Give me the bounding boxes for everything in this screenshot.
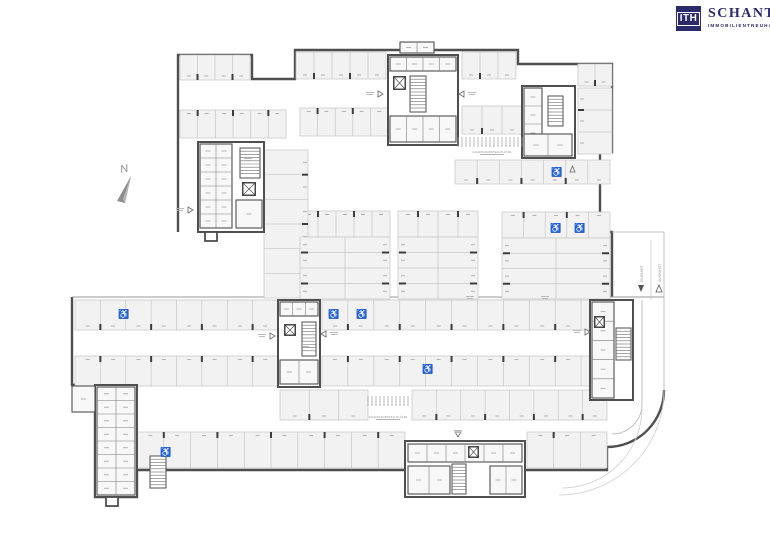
storage-cells	[524, 134, 572, 156]
storage-cells	[390, 57, 456, 71]
elevator-icon	[594, 316, 605, 328]
brand-logo: ITH SCHANTL IMMOBILIENTREUHAND	[676, 6, 770, 31]
ramp-arrow-in-icon	[638, 285, 644, 292]
parking-row	[280, 390, 368, 420]
tiny-label-smudge	[454, 430, 462, 433]
stairs-icon	[452, 464, 466, 494]
storage-cells	[280, 302, 318, 316]
stairs-icon	[548, 96, 563, 126]
storage-cells	[200, 144, 232, 228]
tiny-label-smudge	[468, 92, 476, 95]
storage-cells	[408, 444, 522, 462]
accessible-icon: ♿	[356, 308, 367, 319]
parking-row	[398, 211, 478, 237]
accessible-icon: ♿	[550, 222, 561, 233]
north-label: N	[119, 163, 129, 176]
parking-row	[75, 356, 278, 386]
storage-cells	[236, 200, 262, 228]
ramp-in-label: EINFAHRT	[640, 265, 644, 282]
stairs-icon	[240, 148, 260, 178]
elevator-icon	[242, 182, 256, 196]
north-arrow-icon: N	[117, 163, 131, 203]
parking-row	[75, 300, 278, 330]
parking-row	[322, 356, 607, 386]
brand-name: SCHANTL	[708, 6, 770, 21]
accessible-icon: ♿	[574, 222, 585, 233]
stairs-icon	[410, 76, 426, 112]
bike-parking-label: FAHRRADABSTELLPLÄTZE	[369, 415, 408, 419]
accessible-icon: ♿	[160, 446, 171, 457]
bike-racks-icon: FAHRRADABSTELLPLÄTZE	[367, 396, 408, 420]
bike-parking-label: FAHRRADABSTELLPLÄTZE	[473, 150, 512, 154]
entry-arrow-icon	[270, 333, 275, 339]
parking-row	[180, 55, 250, 80]
accessible-icon: ♿	[118, 308, 129, 319]
parking-island	[502, 238, 610, 299]
floor-plan: ITH SCHANTL IMMOBILIENTREUHAND ♿♿♿♿♿♿♿♿F…	[0, 0, 770, 545]
elevator-icon	[393, 76, 406, 90]
parking-row	[300, 108, 388, 136]
elevator-icon	[468, 446, 479, 458]
elevator-icon	[284, 324, 296, 336]
stairs-icon	[150, 456, 166, 488]
parking-strip	[578, 88, 612, 154]
bike-racks-icon: FAHRRADABSTELLPLÄTZE	[457, 137, 522, 155]
storage-cells	[97, 387, 135, 495]
storage-cells	[280, 360, 318, 384]
parking-row	[412, 390, 607, 420]
garage-plan-drawing: ♿♿♿♿♿♿♿♿FAHRRADABSTELLPLÄTZEFAHRRADABSTE…	[0, 0, 770, 545]
parking-row	[578, 64, 612, 86]
entry-arrow-icon	[321, 331, 326, 337]
entry-arrow-icon	[188, 207, 193, 213]
tiny-label-smudge	[330, 332, 338, 335]
storage-cells	[390, 116, 456, 142]
ith-logo-icon: ITH	[676, 6, 701, 31]
parking-row	[296, 52, 386, 79]
parking-island	[398, 237, 478, 299]
ramp-lanes: EINFAHRTAUSFAHRT	[638, 264, 662, 292]
parking-row	[137, 432, 405, 468]
parking-row	[300, 211, 390, 237]
tiny-label-smudge	[573, 330, 581, 333]
storage-cells	[408, 466, 450, 494]
logo-monogram: ITH	[677, 12, 701, 26]
brand-tagline: IMMOBILIENTREUHAND	[708, 23, 770, 28]
tiny-label-smudge	[258, 334, 266, 337]
entry-arrow-icon	[459, 91, 464, 97]
entry-arrow-icon	[378, 91, 383, 97]
parking-row	[180, 110, 286, 138]
parking-row	[455, 160, 610, 184]
accessible-icon: ♿	[551, 166, 562, 177]
tiny-label-smudge	[366, 92, 374, 95]
accessible-icon: ♿	[328, 308, 339, 319]
storage-cells	[490, 466, 522, 494]
accessible-icon: ♿	[422, 363, 433, 374]
ramp-arrow-out-icon	[656, 285, 662, 292]
stairs-icon	[302, 322, 316, 356]
storage-cells	[72, 386, 95, 412]
parking-row	[462, 52, 516, 79]
stairs-icon	[616, 328, 631, 360]
parking-island	[300, 237, 390, 299]
parking-row	[527, 432, 607, 468]
storage-cells	[400, 42, 434, 53]
ramp-out-label: AUSFAHRT	[658, 264, 662, 282]
